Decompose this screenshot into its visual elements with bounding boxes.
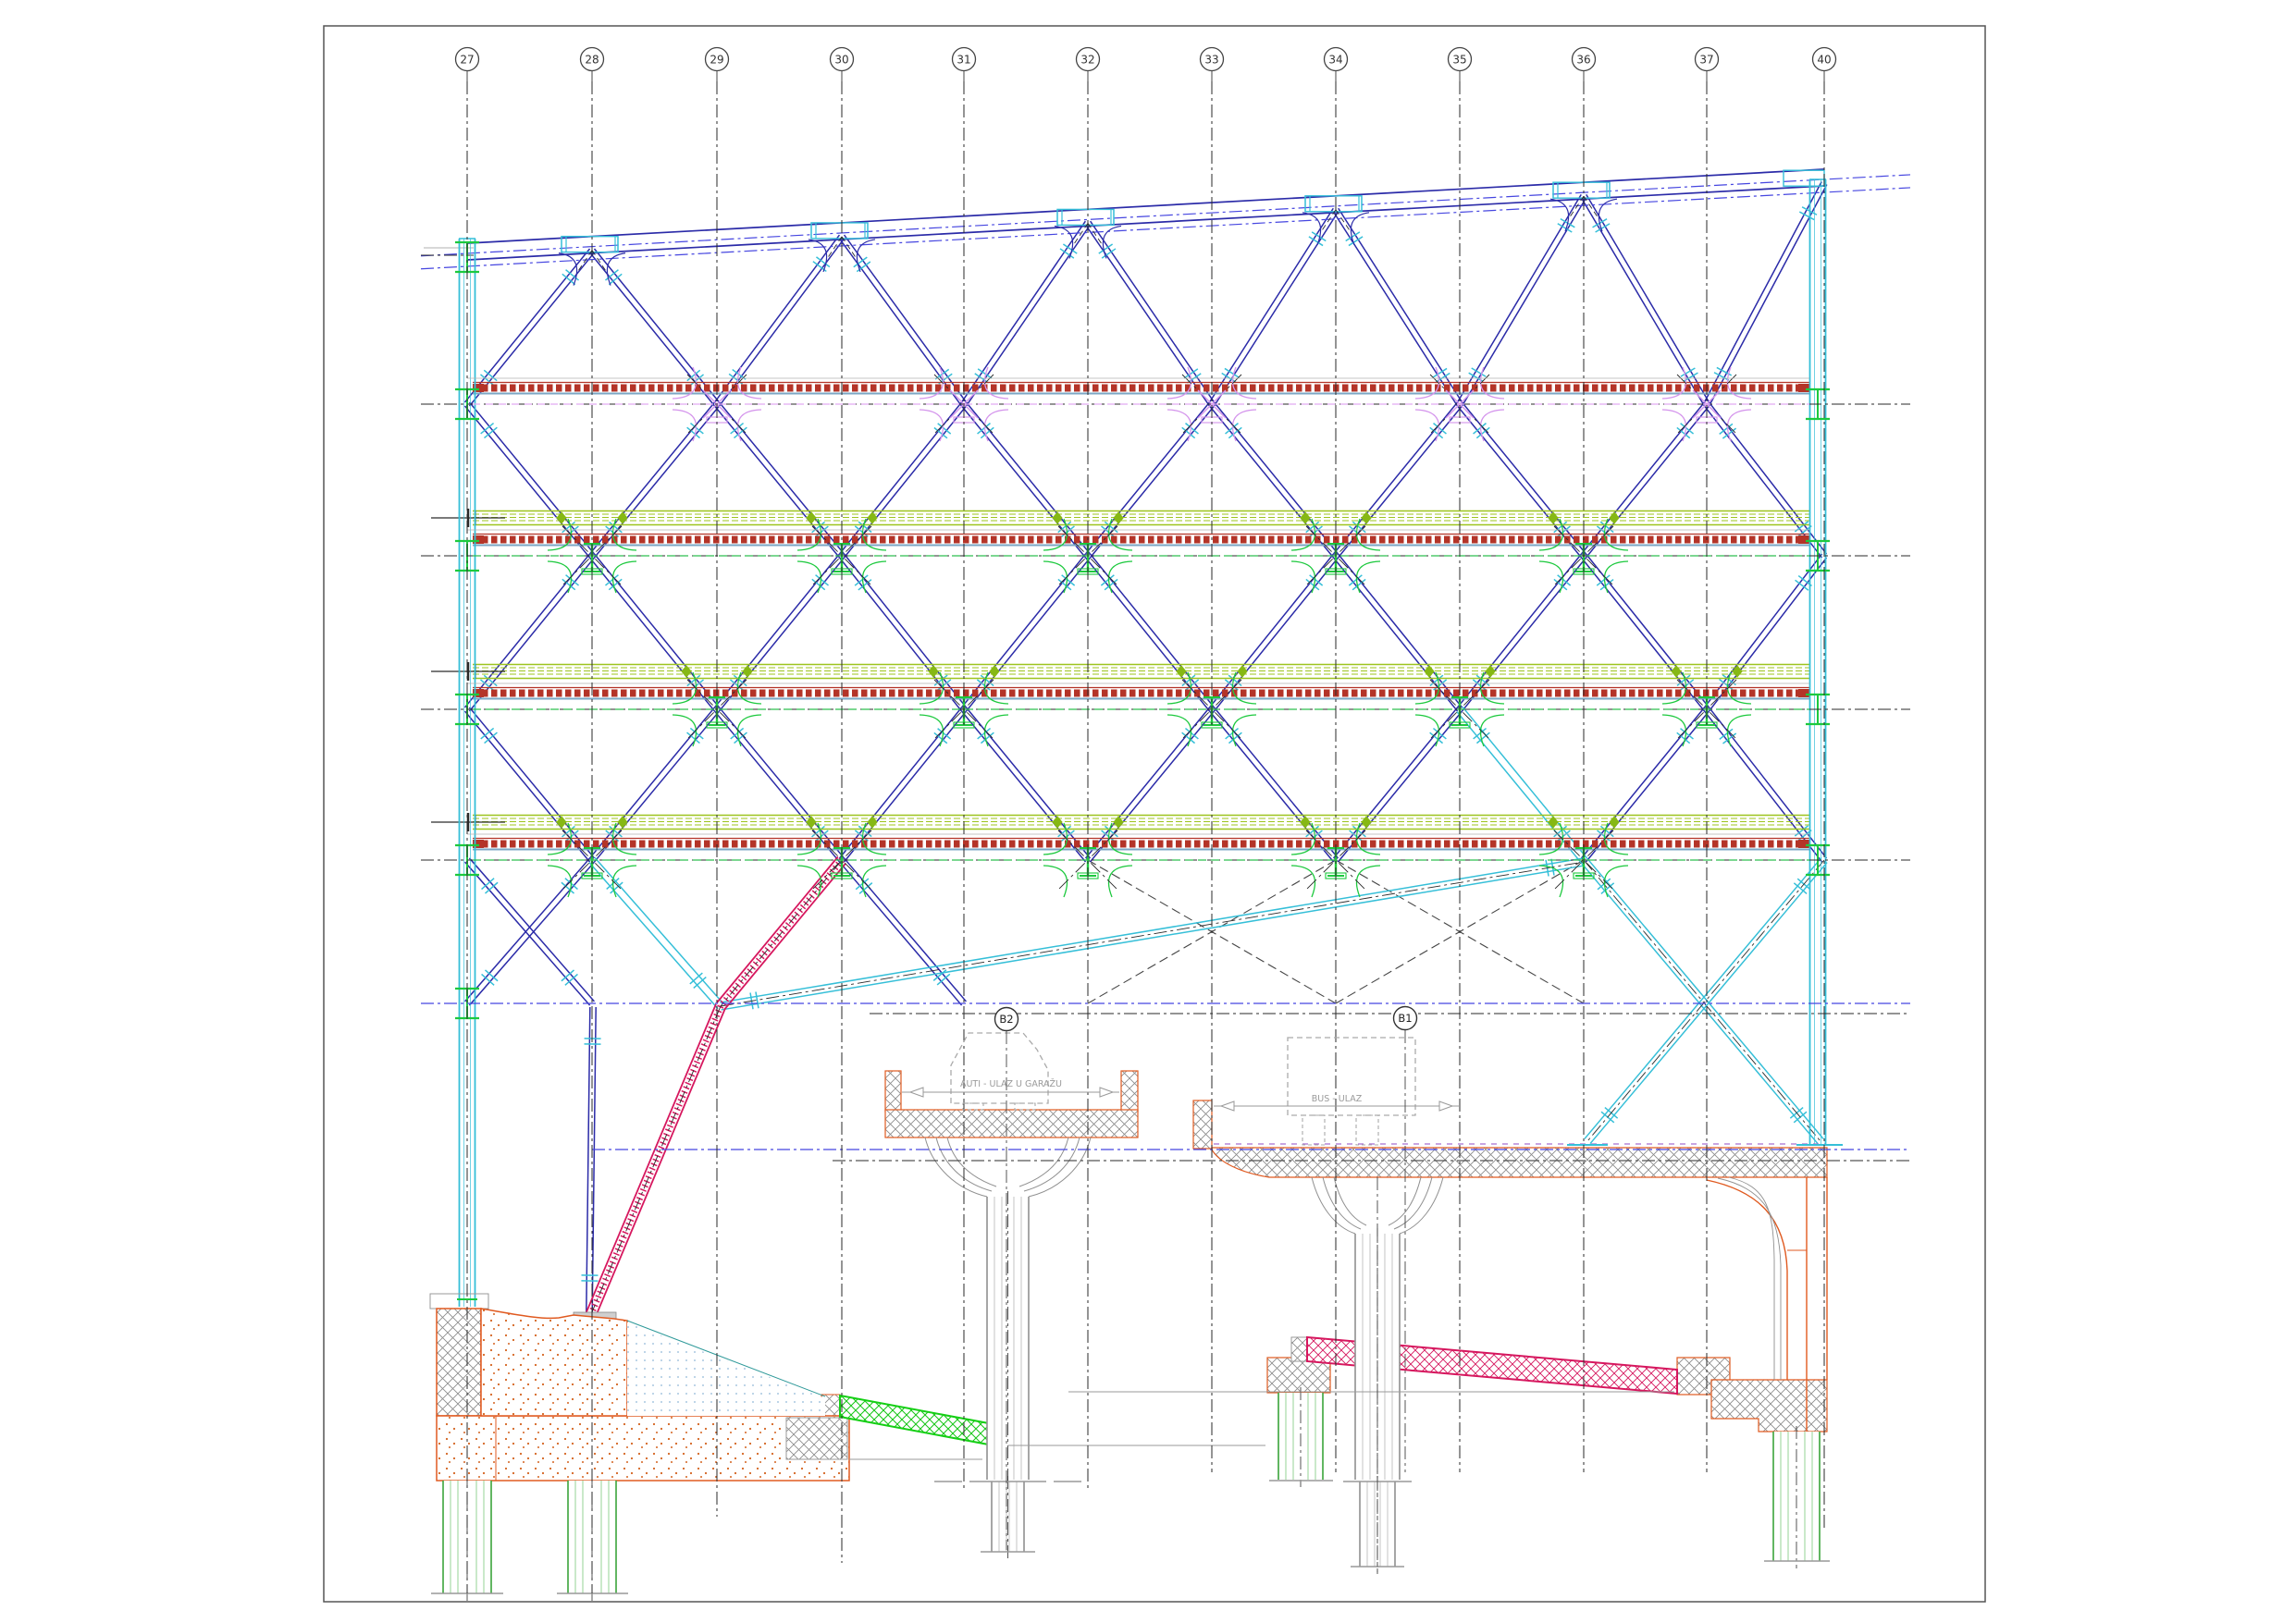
grid-circle-label: 28: [585, 54, 599, 67]
truss-diagonal: [1704, 406, 1821, 558]
chord-splice-box: [1784, 170, 1824, 186]
grid-circle-label: 40: [1817, 54, 1831, 67]
chord-splice-box: [1553, 182, 1610, 198]
chord-node-axis: [1336, 210, 1351, 232]
crimson-ramp-seat: [1291, 1337, 1307, 1361]
truss-diagonal: [961, 221, 1085, 402]
truss-diagonal: [594, 249, 719, 402]
truss-diagonal: [1209, 208, 1333, 402]
sheet-svg: AUTI - ULAZ U GARAŽUBUS - ULAZB2B1272829…: [0, 0, 2296, 1623]
dimension-text: BUS - ULAZ: [1312, 1094, 1363, 1104]
truss-diagonal: [1704, 711, 1821, 862]
truss-diagonal: [1704, 554, 1821, 707]
axis-circle-label: B2: [999, 1013, 1013, 1026]
b2-trough-right-wall: [1121, 1071, 1138, 1112]
truss-diagonal: [469, 707, 594, 858]
dimension-text: AUTI - ULAZ U GARAŽU: [960, 1078, 1062, 1089]
pier-flare-curve: [1312, 1177, 1355, 1234]
grid-circle-label: 30: [834, 54, 848, 67]
chord-splice-box: [1057, 209, 1114, 225]
pier-flare-curve: [1394, 1177, 1432, 1229]
truss-diagonal: [1091, 221, 1215, 402]
embankment-fill: [627, 1322, 825, 1416]
grid-circle-label: 32: [1080, 54, 1094, 67]
red-band-end: [1798, 689, 1809, 697]
cyan-tie-member: [722, 866, 1585, 1010]
red-band-end: [1798, 840, 1809, 848]
green-ramp-member: [840, 1396, 1008, 1448]
truss-diagonal: [586, 1007, 590, 1312]
node-gusset-arc: [1108, 866, 1132, 897]
crimson-strut: [724, 864, 846, 1010]
grid-circle-label: 36: [1576, 54, 1590, 67]
dimension-arrow-icon: [1221, 1101, 1234, 1111]
chord-gusset-arc: [1351, 213, 1369, 245]
grid-circle-label: 37: [1699, 54, 1713, 67]
truss-diagonal: [465, 249, 590, 402]
abutment-body: [481, 1309, 627, 1416]
cyan-tie-member: [1585, 857, 1821, 1138]
car-outline-icon: [951, 1033, 1048, 1103]
truss-diagonal: [1581, 198, 1704, 406]
red-band-end: [1798, 535, 1809, 544]
abutment-bearing-block: [437, 1309, 481, 1416]
pier-flare-curve: [1389, 1177, 1421, 1225]
cyan-tie-axis: [1587, 860, 1824, 1141]
top-chord-axis: [421, 175, 1910, 256]
cyan-tie-member: [1586, 857, 1823, 1138]
pier-flare-curve: [1334, 1177, 1366, 1225]
truss-diagonal: [1339, 208, 1463, 402]
pier-flare-curve: [1019, 1137, 1068, 1187]
b1-deck-slab: [1212, 1148, 1827, 1177]
b1-deck-left-upstand: [1193, 1100, 1212, 1149]
grid-circle-label: 31: [957, 54, 970, 67]
red-band-end: [1798, 384, 1809, 392]
grid-circle-label: 34: [1328, 54, 1342, 67]
pier-flare-curve: [1400, 1177, 1443, 1234]
dimension-arrow-icon: [1100, 1088, 1113, 1097]
crimson-strut: [586, 1004, 716, 1312]
top-chord: [467, 186, 1824, 260]
drawing-sheet: AUTI - ULAZ U GARAŽUBUS - ULAZB2B1272829…: [0, 0, 2296, 1623]
top-chord: [467, 169, 1824, 243]
chord-splice-box: [811, 223, 868, 239]
b2-deck-slab: [885, 1110, 1138, 1137]
right-portal-arch: [1707, 1180, 1787, 1380]
crimson-strut: [596, 1008, 725, 1316]
pier-flare-curve: [1024, 1137, 1080, 1191]
chord-gusset-arc: [1550, 199, 1569, 231]
cyan-tie-member: [720, 858, 1583, 1002]
pier-flare-curve: [925, 1137, 987, 1197]
top-chord-axis-2: [421, 188, 1910, 269]
grid-circle-label: 27: [460, 54, 474, 67]
truss-diagonal: [469, 402, 594, 554]
dimension-arrow-icon: [910, 1088, 923, 1097]
base-slab-block: [786, 1418, 847, 1459]
axis-circle-label: B1: [1398, 1012, 1412, 1025]
bus-wheel-icon: [1356, 1115, 1378, 1145]
pier-flare-curve: [1323, 1177, 1361, 1229]
node-gusset-arc: [1043, 866, 1068, 897]
dimension-arrow-icon: [1439, 1101, 1452, 1111]
cyan-tie-axis: [721, 862, 1584, 1006]
grid-circle-label: 35: [1452, 54, 1466, 67]
chord-node-axis: [1088, 223, 1103, 245]
grid-circle-label: 33: [1204, 54, 1218, 67]
chord-gusset-arc: [559, 253, 577, 286]
grid-circle-label: 29: [710, 54, 723, 67]
truss-diagonal: [1710, 402, 1827, 554]
right-portal-curve: [1718, 1178, 1781, 1380]
right-portal-curve: [1729, 1177, 1774, 1380]
cyan-member: [589, 863, 718, 1009]
bus-wheel-icon: [1302, 1115, 1325, 1145]
car-wheel-icon: [1015, 1103, 1035, 1110]
truss-diagonal: [1586, 194, 1710, 402]
crimson-strut-axis: [591, 1006, 721, 1314]
node-gusset-arc: [1291, 866, 1315, 897]
pier-flare-curve: [1029, 1137, 1091, 1197]
b2-trough-left-wall: [885, 1071, 901, 1112]
truss-diagonal: [592, 1007, 596, 1312]
crimson-strut-axis: [721, 860, 842, 1006]
cyan-member: [595, 857, 723, 1003]
truss-diagonal: [840, 862, 962, 1005]
chord-gusset-arc: [1302, 213, 1321, 245]
pier-flare-curve: [947, 1137, 996, 1187]
b1-lower-floor: [1711, 1380, 1827, 1432]
chord-node-axis: [842, 237, 857, 259]
car-wheel-icon: [963, 1103, 983, 1110]
cyan-tie-axis: [1584, 860, 1821, 1141]
crimson-strut: [717, 856, 838, 1002]
truss-diagonal: [1710, 707, 1827, 858]
